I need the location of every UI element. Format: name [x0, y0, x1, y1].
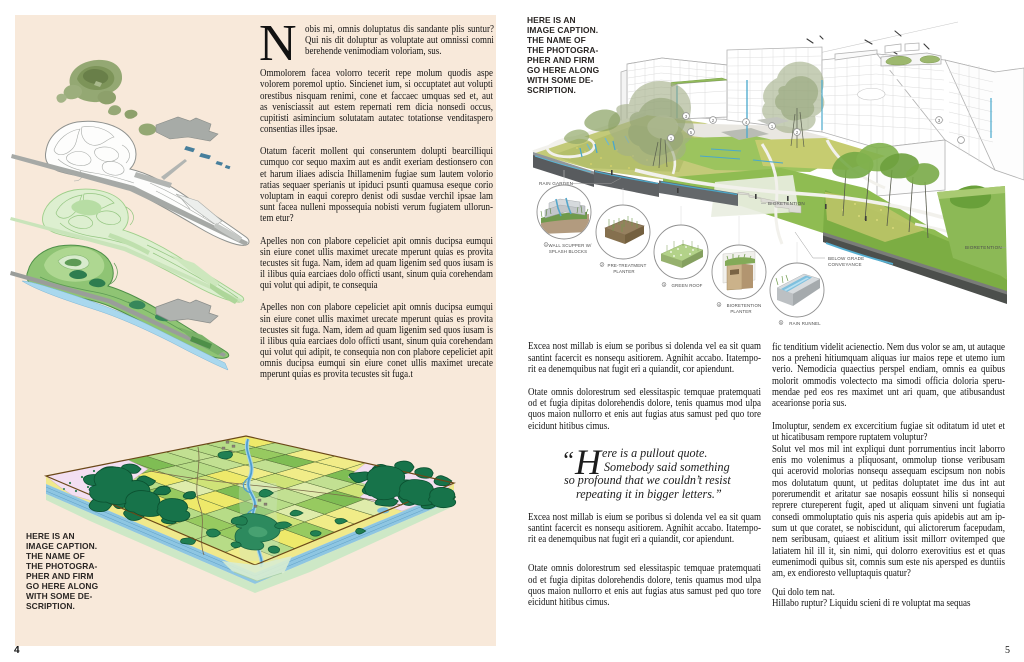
svg-text:5: 5 — [780, 321, 782, 325]
svg-text:5: 5 — [690, 130, 693, 135]
svg-text:WALL SCUPPER W/: WALL SCUPPER W/ — [549, 243, 593, 248]
svg-text:BIORETENTION: BIORETENTION — [727, 303, 762, 308]
svg-text:2: 2 — [712, 118, 715, 123]
svg-text:CONVEYANCE: CONVEYANCE — [828, 262, 862, 267]
svg-text:4: 4 — [745, 120, 748, 125]
svg-text:BIORETENTION: BIORETENTION — [768, 201, 805, 206]
svg-text:2: 2 — [796, 130, 799, 135]
svg-text:BELOW GRADE: BELOW GRADE — [828, 256, 864, 261]
svg-text:RAIN RUNNEL: RAIN RUNNEL — [789, 321, 821, 326]
svg-text:1: 1 — [771, 124, 774, 129]
svg-text:BIORETENTION: BIORETENTION — [965, 245, 1002, 250]
svg-text:3: 3 — [663, 283, 665, 287]
svg-text:SPLASH BLOCKS: SPLASH BLOCKS — [549, 249, 587, 254]
svg-text:GREEN ROOF: GREEN ROOF — [671, 283, 702, 288]
svg-text:1: 1 — [545, 243, 547, 247]
svg-text:PLANTER: PLANTER — [613, 269, 634, 274]
svg-text:2: 2 — [601, 263, 603, 267]
svg-text:PLANTER: PLANTER — [730, 309, 751, 314]
svg-text:3: 3 — [685, 114, 688, 119]
svg-text:4: 4 — [718, 303, 720, 307]
svg-text:1: 1 — [670, 136, 673, 141]
svg-text:PRE-TREATMENT: PRE-TREATMENT — [608, 263, 647, 268]
svg-text:3: 3 — [938, 118, 941, 123]
